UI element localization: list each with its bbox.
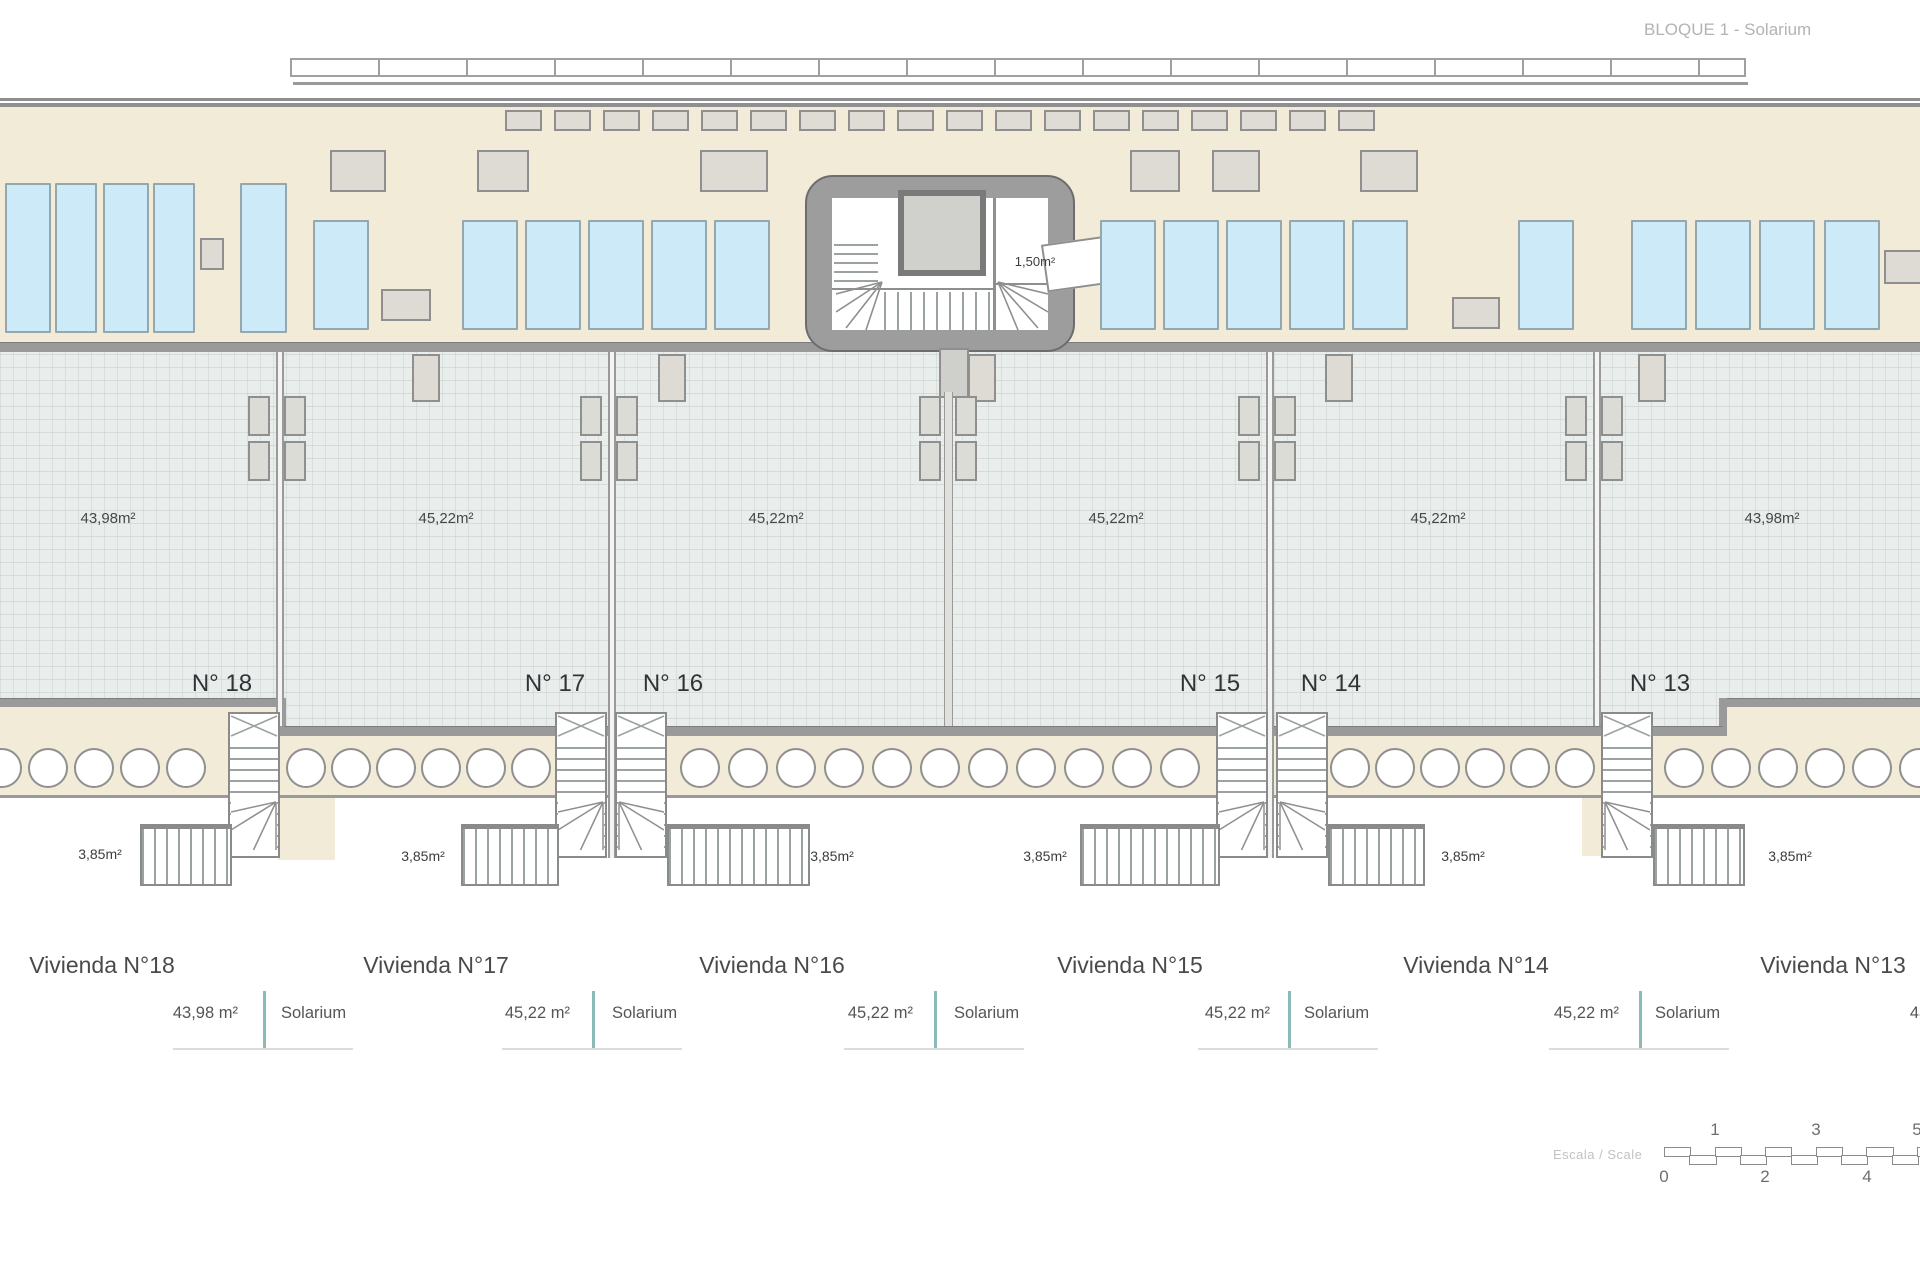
- sunbed: [651, 220, 707, 330]
- sunbed: [55, 183, 97, 333]
- unit-16-area-label: 45,22m²: [748, 510, 803, 527]
- stair-shaft-brace: [617, 714, 665, 738]
- unit-13-number: N° 13: [1630, 670, 1690, 698]
- party-wall-divider: [276, 352, 284, 726]
- unit-16-number: N° 16: [643, 670, 703, 698]
- unit-17-area-label: 45,22m²: [418, 510, 473, 527]
- walkway-baluster: [1160, 748, 1200, 788]
- roof-vent: [505, 110, 542, 131]
- planter-box: [1565, 441, 1587, 481]
- walkway-baluster: [824, 748, 864, 788]
- walkway-baluster: [1330, 748, 1370, 788]
- stair-shaft-brace: [557, 714, 605, 738]
- roof-vent: [1338, 110, 1375, 131]
- roof-vent: [1044, 110, 1081, 131]
- walkway-baluster: [1112, 748, 1152, 788]
- roof-vent: [652, 110, 689, 131]
- stair-run: [1653, 824, 1745, 886]
- scale-tick-5: 5: [1912, 1120, 1920, 1140]
- legend-underline: [173, 1048, 353, 1050]
- planter-box: [1238, 441, 1260, 481]
- unit-access-box: [658, 354, 686, 402]
- roof-vent: [750, 110, 787, 131]
- roof-vent: [897, 110, 934, 131]
- walkway-baluster: [1420, 748, 1460, 788]
- stair-run: [667, 824, 810, 886]
- drawing-sheet: BLOQUE 1 - Solarium 1,50m²: [0, 0, 1920, 1280]
- roof-vent: [554, 110, 591, 131]
- walkway-baluster: [680, 748, 720, 788]
- planter-box: [248, 396, 270, 436]
- roof-vent: [1142, 110, 1179, 131]
- walkway-baluster: [421, 748, 461, 788]
- scale-bar-segment: [1841, 1155, 1868, 1165]
- center-party-wall: [944, 392, 953, 726]
- roof-vent: [848, 110, 885, 131]
- stair-winder-fan: [558, 800, 604, 852]
- parapet-line: [293, 82, 1748, 85]
- roof-vent: [946, 110, 983, 131]
- sunbed: [1759, 220, 1815, 330]
- unit-18-area-label: 43,98m²: [80, 510, 135, 527]
- stair-winder-fan: [1604, 800, 1650, 852]
- planter-box: [919, 396, 941, 436]
- planter-box: [580, 396, 602, 436]
- unit-13-stair-area: 3,85m²: [1768, 848, 1812, 864]
- planter-box: [1601, 441, 1623, 481]
- unit-17-number: N° 17: [525, 670, 585, 698]
- side-table: [200, 238, 224, 270]
- scale-bar-segment: [1866, 1147, 1893, 1157]
- scale-bar-segment: [1664, 1147, 1691, 1157]
- rooftop-equipment-box: [1130, 150, 1180, 192]
- legend-room-14: Solarium: [1304, 1004, 1369, 1023]
- stairwell-lower-treads: [884, 292, 994, 330]
- legend-room-17: Solarium: [281, 1004, 346, 1023]
- unit-13-area-label: 43,98m²: [1744, 510, 1799, 527]
- walkway-tab-right: [1582, 798, 1601, 856]
- legend-area-13: 43,98 m²: [1775, 1004, 1920, 1023]
- walkway-baluster: [511, 748, 551, 788]
- scale-tick-0: 0: [1659, 1167, 1668, 1187]
- sunbed: [1226, 220, 1282, 330]
- planter-box: [284, 396, 306, 436]
- sunbed: [240, 183, 287, 333]
- sunbed: [313, 220, 369, 330]
- legend-divider: [1288, 991, 1291, 1048]
- unit-18-number: N° 18: [192, 670, 252, 698]
- walkway-baluster: [74, 748, 114, 788]
- unit-16-stair-area: 3,85m²: [810, 848, 854, 864]
- stair-shaft-brace: [1603, 714, 1651, 738]
- walkway-baluster: [1510, 748, 1550, 788]
- planter-box: [955, 396, 977, 436]
- legend-divider: [934, 991, 937, 1048]
- walkway-baluster: [968, 748, 1008, 788]
- legend-area-16: 45,22 m²: [713, 1004, 913, 1023]
- legend-underline: [1198, 1048, 1378, 1050]
- walkway-baluster: [331, 748, 371, 788]
- side-table: [1452, 297, 1500, 329]
- stair-run: [461, 824, 559, 886]
- walkway-baluster: [776, 748, 816, 788]
- planter-box: [248, 441, 270, 481]
- unit-15-area-label: 45,22m²: [1088, 510, 1143, 527]
- unit-access-box: [1638, 354, 1666, 402]
- planter-box: [1274, 441, 1296, 481]
- unit-15-number: N° 15: [1180, 670, 1240, 698]
- unit-18-stair-area: 3,85m²: [78, 846, 122, 862]
- side-table: [1884, 250, 1920, 284]
- legend-room-13: Solarium: [1655, 1004, 1720, 1023]
- walkway-baluster: [120, 748, 160, 788]
- planter-box: [1238, 396, 1260, 436]
- walkway-baluster: [466, 748, 506, 788]
- walkway-baluster: [920, 748, 960, 788]
- scale-bar-segment: [1816, 1147, 1843, 1157]
- legend-area-15: 45,22 m²: [1070, 1004, 1270, 1023]
- sunbed: [5, 183, 51, 333]
- stairwell-area-label: 1,50m²: [1015, 254, 1055, 269]
- stair-winder-fan: [1279, 800, 1325, 852]
- sunbed: [525, 220, 581, 330]
- sunbed: [714, 220, 770, 330]
- walkway-baluster: [28, 748, 68, 788]
- legend-title-15: Vivienda N°15: [1057, 952, 1203, 979]
- sunbed: [1518, 220, 1574, 330]
- stair-winder-fan: [618, 800, 664, 852]
- scale-bar-segment: [1740, 1155, 1767, 1165]
- stair-shaft-brace: [1218, 714, 1266, 738]
- roof-vent: [1093, 110, 1130, 131]
- party-wall-divider: [1593, 352, 1601, 726]
- roof-vent: [1240, 110, 1277, 131]
- unit-14-stair-area: 3,85m²: [1441, 848, 1485, 864]
- unit-14-area-label: 45,22m²: [1410, 510, 1465, 527]
- sunbed: [1100, 220, 1156, 330]
- unit-17-stair-area: 3,85m²: [401, 848, 445, 864]
- walkway-baluster: [1064, 748, 1104, 788]
- unit-access-box: [968, 354, 996, 402]
- legend-underline: [844, 1048, 1024, 1050]
- rooftop-equipment-box: [477, 150, 529, 192]
- stair-winder-fan: [231, 800, 277, 852]
- scale-bar-segment: [1765, 1147, 1792, 1157]
- stair-run: [140, 824, 232, 886]
- legend-title-16: Vivienda N°16: [699, 952, 845, 979]
- walkway-baluster: [1664, 748, 1704, 788]
- scale-tick-4: 4: [1862, 1167, 1871, 1187]
- legend-title-14: Vivienda N°14: [1403, 952, 1549, 979]
- unit-15-stair-area: 3,85m²: [1023, 848, 1067, 864]
- sunbed: [1163, 220, 1219, 330]
- walkway-baluster: [1555, 748, 1595, 788]
- roof-vent: [799, 110, 836, 131]
- unit-access-box: [412, 354, 440, 402]
- scale-bar-segment: [1892, 1155, 1919, 1165]
- unit-14-number: N° 14: [1301, 670, 1361, 698]
- legend-area-17: 45,22 m²: [370, 1004, 570, 1023]
- scale-bar-segment: [1689, 1155, 1716, 1165]
- legend-room-15: Solarium: [954, 1004, 1019, 1023]
- scale-tick-2: 2: [1760, 1167, 1769, 1187]
- sunbed: [153, 183, 195, 333]
- rooftop-equipment-box: [700, 150, 768, 192]
- walkway-baluster: [1758, 748, 1798, 788]
- scale-label: Escala / Scale: [1553, 1147, 1642, 1162]
- sunbed: [1631, 220, 1687, 330]
- walkway-tab-left: [278, 798, 335, 860]
- planter-box: [1565, 396, 1587, 436]
- planter-box: [616, 441, 638, 481]
- sunbed: [1695, 220, 1751, 330]
- legend-divider: [1639, 991, 1642, 1048]
- legend-area-14: 45,22 m²: [1419, 1004, 1619, 1023]
- scale-bar-segment: [1791, 1155, 1818, 1165]
- walkway-baluster: [1805, 748, 1845, 788]
- roof-vent: [701, 110, 738, 131]
- legend-underline: [502, 1048, 682, 1050]
- elevator-shaft: [898, 190, 986, 276]
- sunbed: [1289, 220, 1345, 330]
- walkway-baluster: [1465, 748, 1505, 788]
- stair-run: [1080, 824, 1220, 886]
- legend-room-16: Solarium: [612, 1004, 677, 1023]
- stairwell-winder-left: [836, 280, 884, 330]
- walkway-baluster: [872, 748, 912, 788]
- stair-winder-fan: [1219, 800, 1265, 852]
- scale-bar-segment: [1715, 1147, 1742, 1157]
- planter-box: [1601, 396, 1623, 436]
- walkway-baluster: [286, 748, 326, 788]
- roof-vent: [603, 110, 640, 131]
- walkway-baluster: [1852, 748, 1892, 788]
- legend-area-18: 43,98 m²: [38, 1004, 238, 1023]
- legend-divider: [263, 991, 266, 1048]
- stair-run: [1328, 824, 1425, 886]
- sunbed: [462, 220, 518, 330]
- planter-box: [955, 441, 977, 481]
- stair-shaft-brace: [1278, 714, 1326, 738]
- rooftop-equipment-box: [1212, 150, 1260, 192]
- center-corridor-stub: [939, 348, 969, 398]
- walkway-baluster: [1375, 748, 1415, 788]
- roof-vent: [995, 110, 1032, 131]
- planter-box: [284, 441, 306, 481]
- legend-title-18: Vivienda N°18: [29, 952, 175, 979]
- legend-title-17: Vivienda N°17: [363, 952, 509, 979]
- sunbed: [588, 220, 644, 330]
- stair-shaft-brace: [230, 714, 278, 738]
- sunbed: [103, 183, 149, 333]
- unit-access-box: [1325, 354, 1353, 402]
- exterior-wall-line-outer: [0, 98, 1920, 101]
- planter-box: [919, 441, 941, 481]
- drawing-title: BLOQUE 1 - Solarium: [1644, 20, 1811, 40]
- roof-pergola-bar: [290, 58, 1746, 77]
- roof-vent: [1289, 110, 1326, 131]
- scale-tick-1: 1: [1710, 1120, 1719, 1140]
- legend-underline: [1549, 1048, 1729, 1050]
- stairwell-winder-right: [996, 280, 1048, 330]
- walkway-baluster: [1711, 748, 1751, 788]
- planter-box: [580, 441, 602, 481]
- walkway-baluster: [1016, 748, 1056, 788]
- walkway-baluster: [376, 748, 416, 788]
- side-table: [381, 289, 431, 321]
- rooftop-equipment-box: [1360, 150, 1418, 192]
- walkway-baluster: [728, 748, 768, 788]
- sunbed: [1352, 220, 1408, 330]
- scale-tick-3: 3: [1811, 1120, 1820, 1140]
- sunbed: [1824, 220, 1880, 330]
- walkway-baluster: [166, 748, 206, 788]
- planter-box: [1274, 396, 1296, 436]
- legend-title-13: Vivienda N°13: [1760, 952, 1906, 979]
- roof-vent: [1191, 110, 1228, 131]
- rooftop-equipment-box: [330, 150, 386, 192]
- planter-box: [616, 396, 638, 436]
- legend-divider: [592, 991, 595, 1048]
